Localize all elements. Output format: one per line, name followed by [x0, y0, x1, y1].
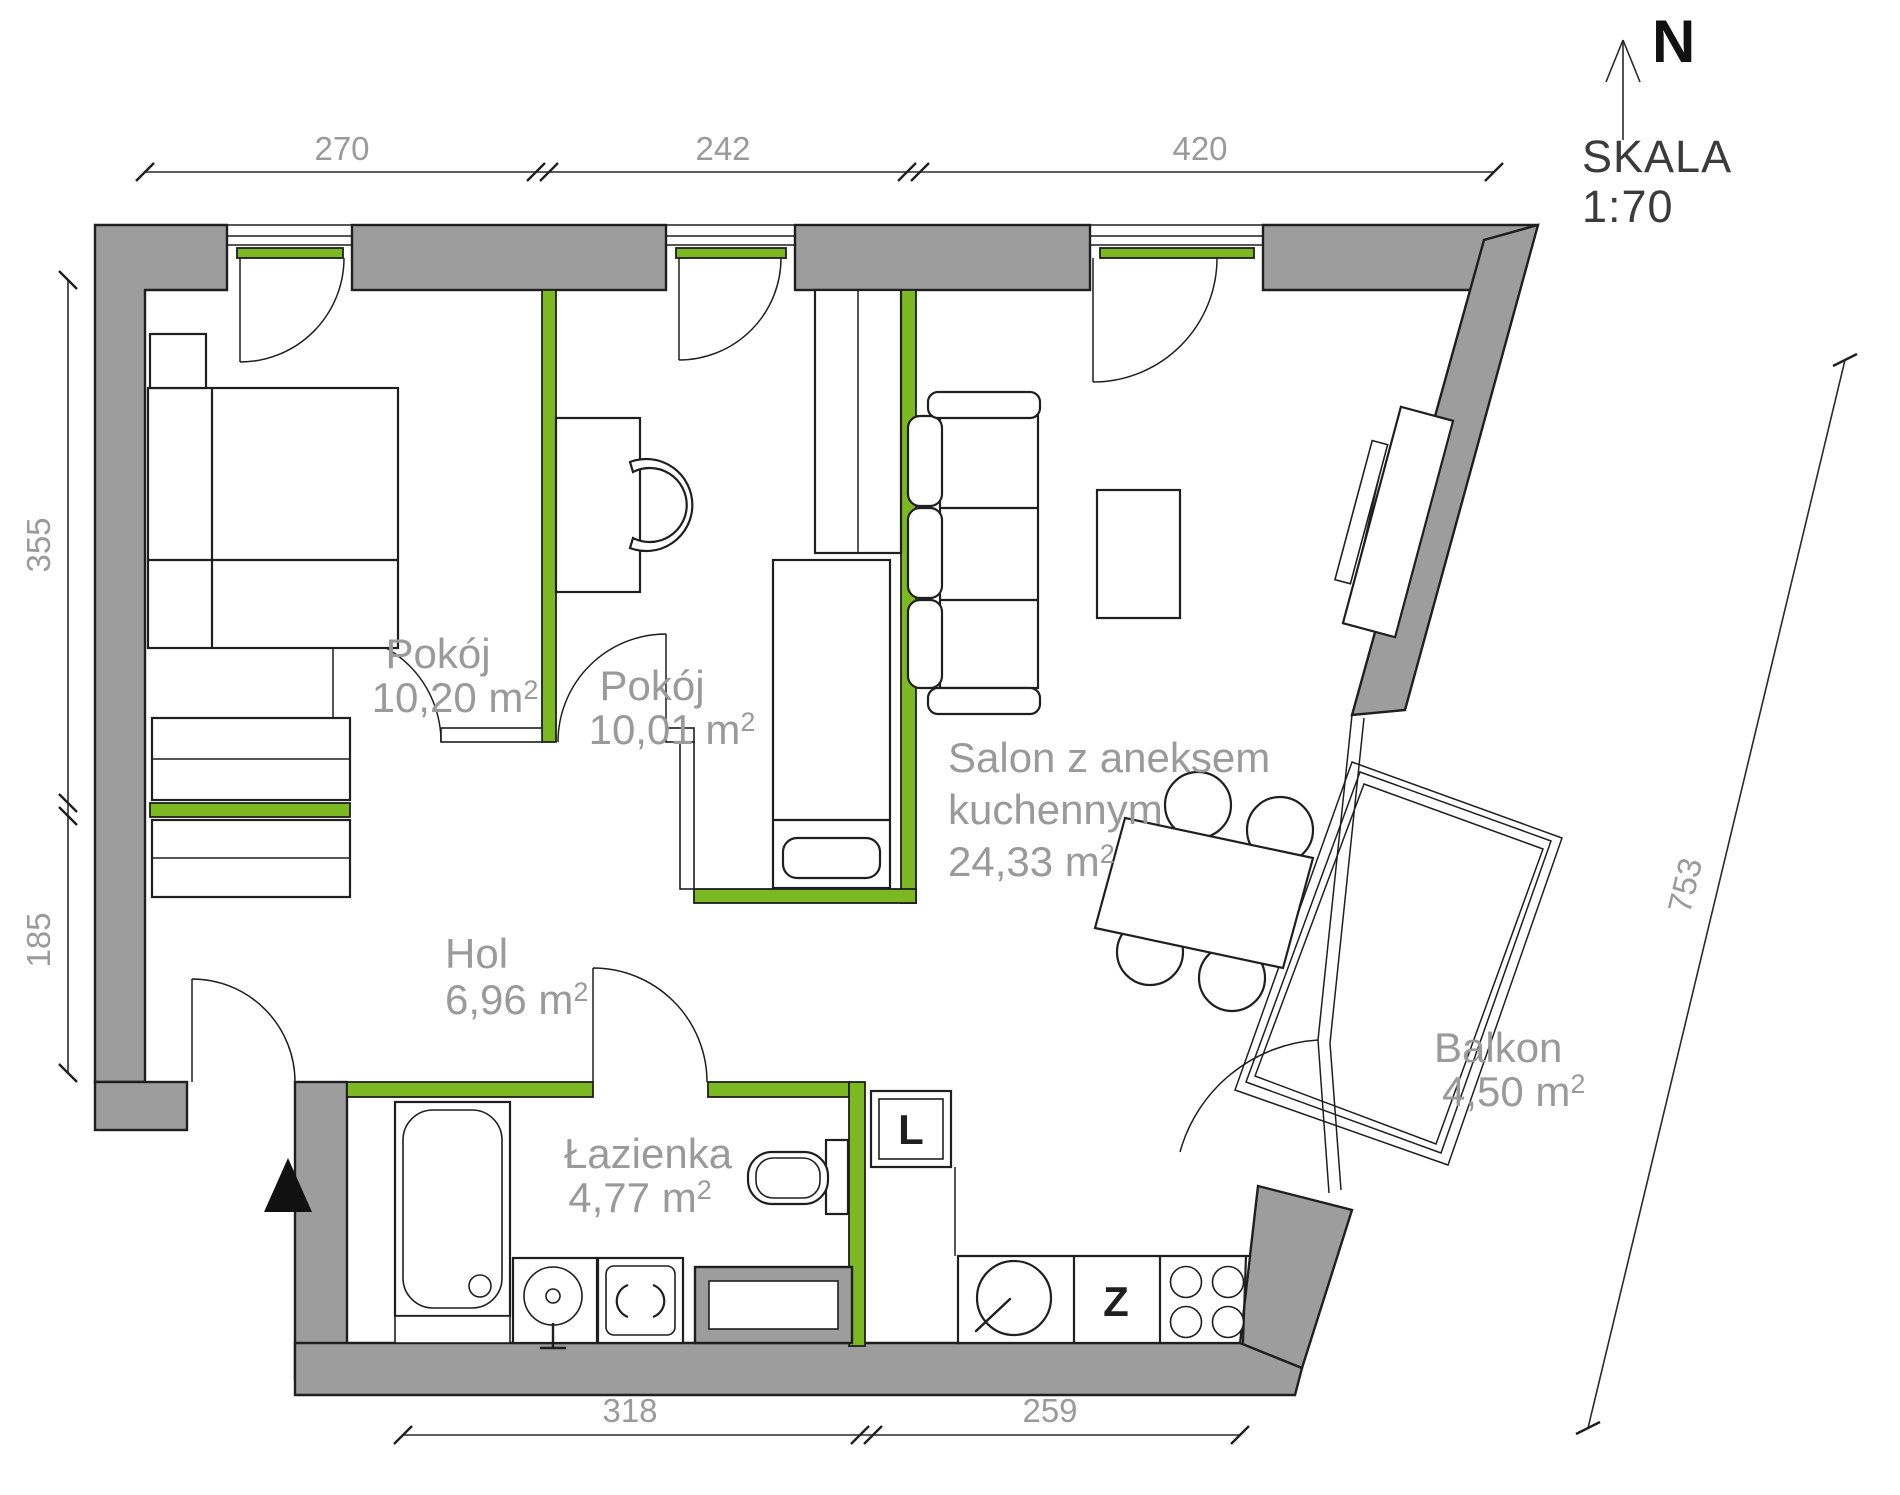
dishwasher-label: Z	[1103, 1278, 1129, 1325]
scale-value: 1:70	[1582, 181, 1674, 232]
balcony-name: Balkon	[1434, 1024, 1562, 1071]
wall-top-3	[795, 225, 1090, 290]
desk	[556, 418, 640, 592]
window-sash-icon	[679, 258, 781, 360]
dimension-line-top: 270 242 420	[136, 130, 1503, 181]
room2-name: Pokój	[599, 662, 704, 709]
wall-green-bathroom-top-right	[708, 1082, 849, 1097]
dim-top-3: 420	[1172, 130, 1227, 167]
dim-left-2: 185	[20, 912, 57, 967]
wall-niche	[695, 1267, 852, 1343]
bed-pillow	[783, 838, 880, 878]
wall-stub-room-doors	[441, 728, 542, 742]
fridge: L	[871, 1091, 955, 1256]
floor-plan-page: L Z	[0, 0, 1900, 1495]
kitchen-counter: Z	[958, 1256, 1250, 1343]
bathroom-name: Łazienka	[564, 1130, 733, 1177]
room2-area: 10,01 m2	[589, 706, 756, 753]
bathtub	[395, 1102, 510, 1343]
wall-green-room2-south	[694, 889, 916, 903]
dim-left-1: 355	[20, 517, 57, 572]
salon-name-line2: kuchennym	[948, 786, 1163, 833]
wall-green-room1-room2	[542, 290, 556, 742]
nightstand	[150, 334, 206, 388]
scale-label: SKALA	[1582, 131, 1732, 182]
dim-right-1: 753	[1660, 854, 1709, 916]
door-entrance	[192, 979, 295, 1082]
salon-area: 24,33 m2	[948, 838, 1115, 885]
wall-bathroom-left-column	[295, 1082, 347, 1380]
coffee-table	[1097, 490, 1180, 618]
double-bed	[148, 388, 398, 648]
room1-area: 10,20 m2	[372, 674, 539, 721]
hol-area: 6,96 m2	[445, 976, 588, 1023]
north-label: N	[1652, 8, 1695, 75]
wall-green-room1-wardrobe	[150, 803, 350, 817]
window-sash-icon	[1093, 258, 1217, 382]
room1-name: Pokój	[385, 630, 490, 677]
dimension-line-bottom: 318 259	[394, 1392, 1249, 1444]
dim-top-2: 242	[695, 130, 750, 167]
dim-bottom-2: 259	[1022, 1392, 1077, 1429]
salon-name-line1: Salon z aneksem	[948, 734, 1270, 781]
washing-machine	[598, 1258, 683, 1343]
north-arrow-icon: N	[1606, 8, 1695, 140]
door-bathroom	[593, 968, 707, 1082]
sofa	[908, 392, 1040, 714]
hol-name: Hol	[445, 930, 508, 977]
wall-bottom	[295, 1343, 1302, 1395]
wall-top-2	[352, 225, 666, 290]
bathroom-area: 4,77 m2	[568, 1174, 711, 1221]
dimension-line-left: 355 185	[20, 271, 77, 1082]
window-room2	[666, 225, 795, 360]
dimension-line-right-diagonal: 753	[1576, 354, 1857, 1434]
fridge-label: L	[898, 1106, 924, 1153]
room2-furniture	[556, 290, 901, 888]
window-sash-icon	[240, 258, 344, 362]
scale-block: SKALA 1:70	[1582, 131, 1732, 232]
washbasin	[513, 1258, 597, 1348]
window-room1	[227, 225, 352, 362]
toilet	[748, 1140, 848, 1214]
kitchen-sink-icon	[976, 1261, 1051, 1335]
balcony-area: 4,50 m2	[1442, 1068, 1585, 1115]
wall-slanted-lower	[1240, 1186, 1352, 1368]
dim-top-1: 270	[314, 130, 369, 167]
dim-bottom-1: 318	[602, 1392, 657, 1429]
wall-entrance-step	[95, 1082, 187, 1130]
kitchen: L Z	[695, 1091, 1250, 1343]
wall-hol-room2-vertical	[680, 742, 694, 889]
window-salon	[1090, 225, 1263, 382]
floor-plan-drawing: L Z	[0, 0, 1900, 1495]
wall-green-bathroom-top-left	[347, 1082, 593, 1097]
